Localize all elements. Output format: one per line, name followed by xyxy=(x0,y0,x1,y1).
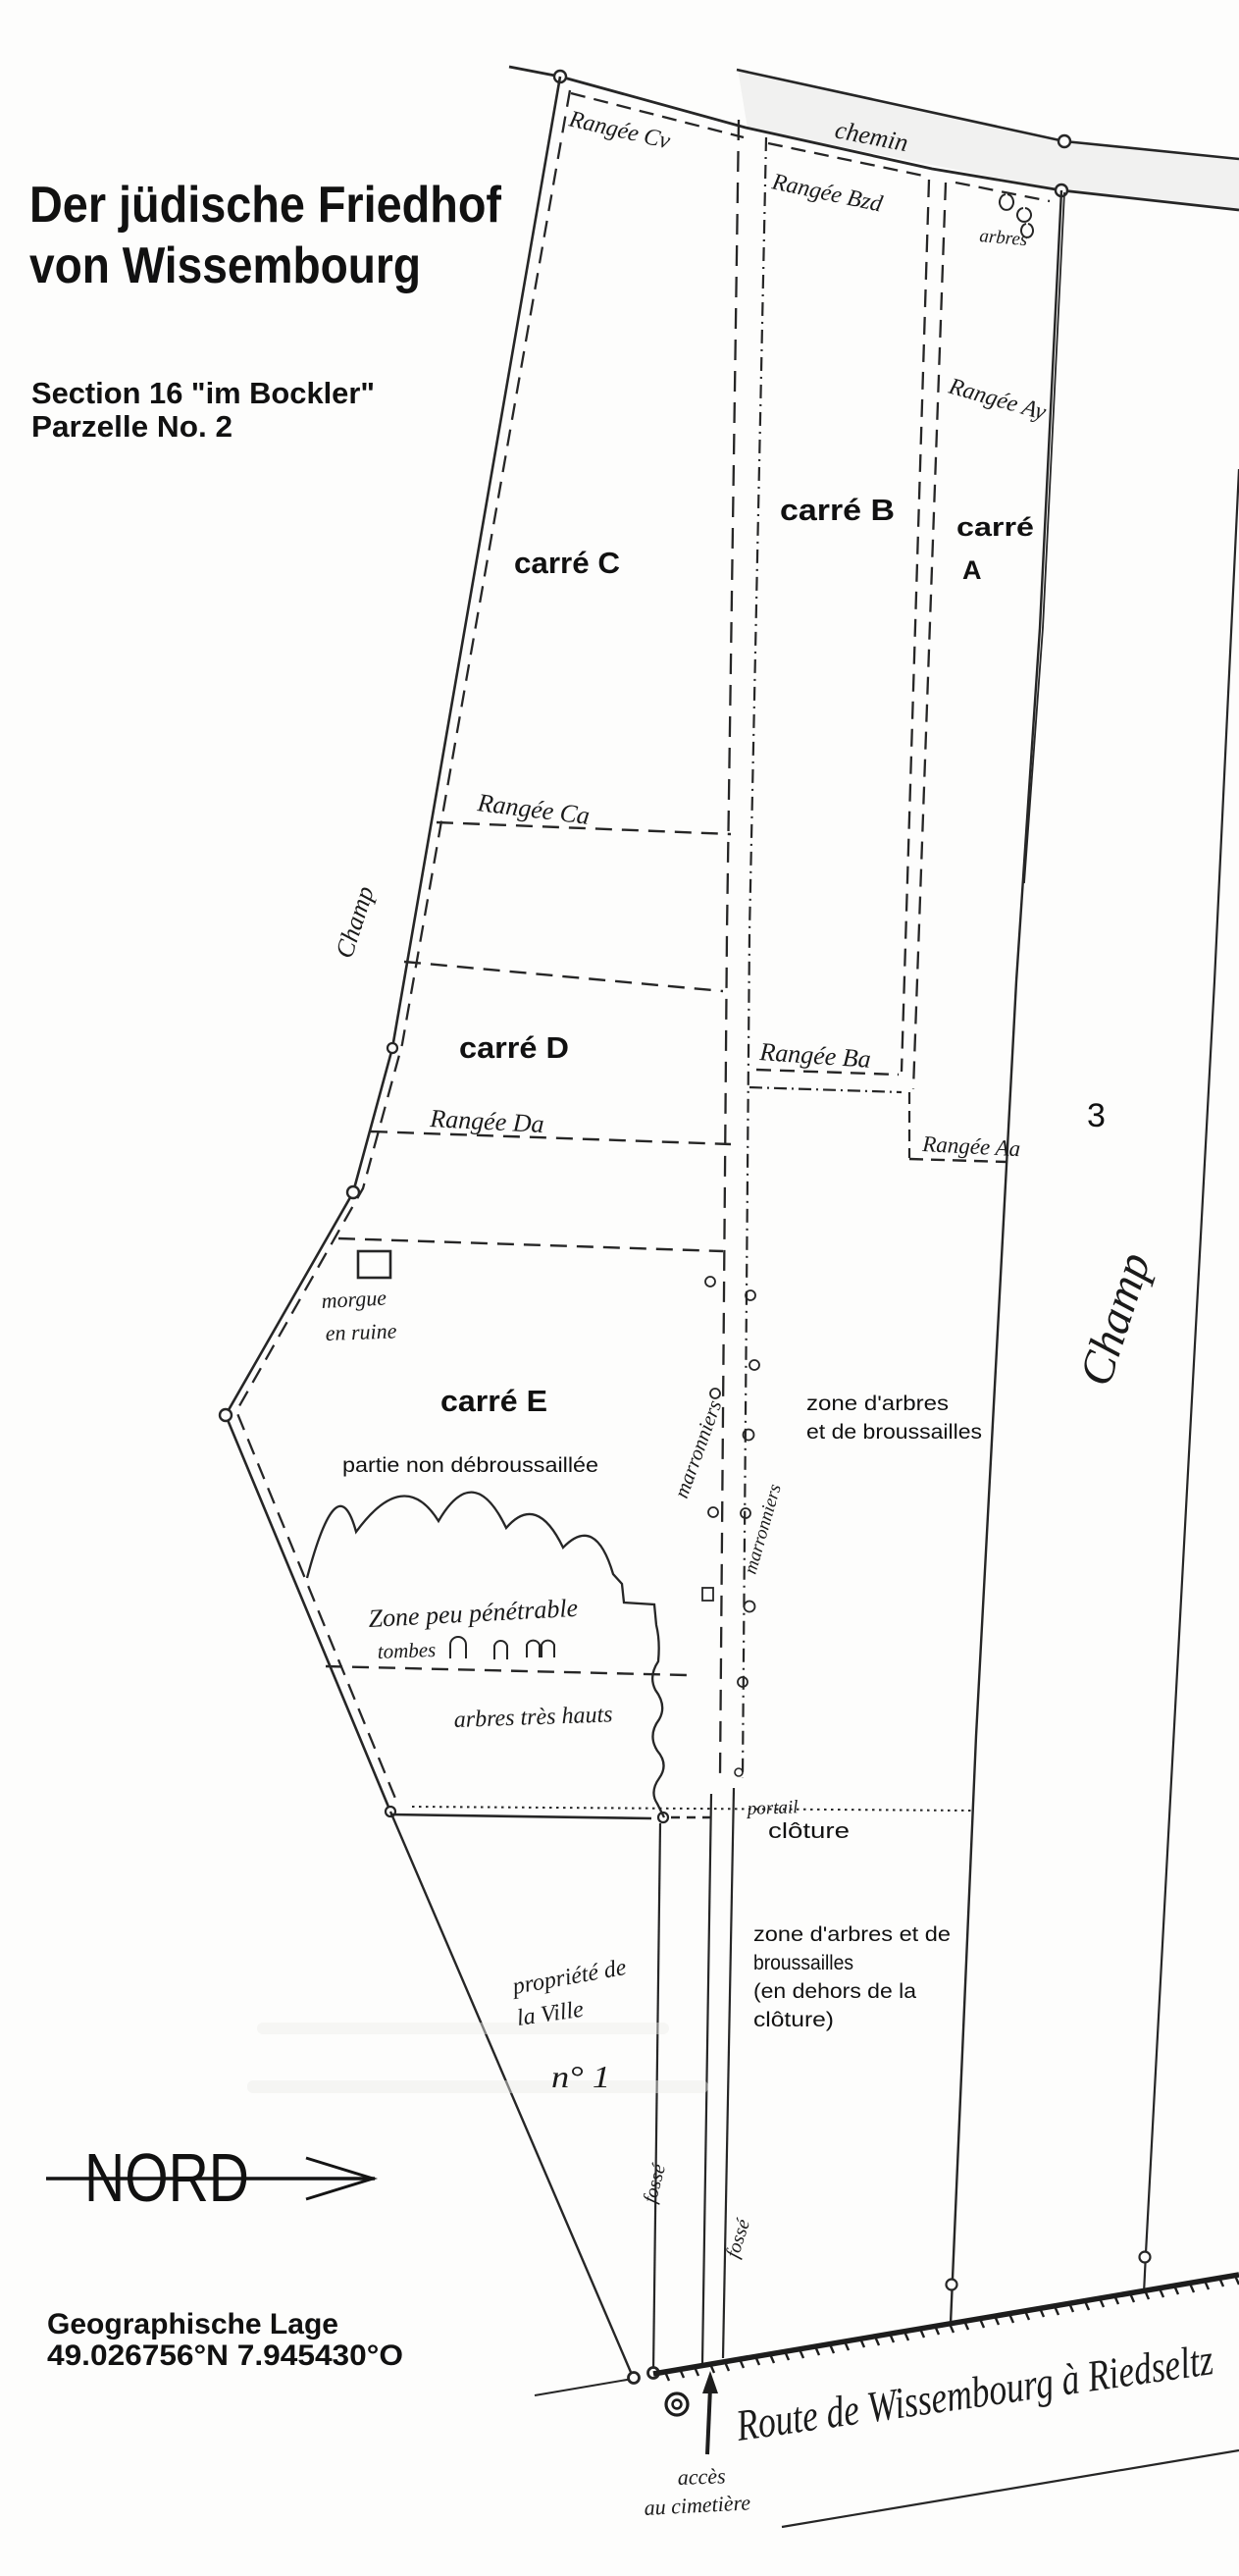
svg-text:Rangée Da: Rangée Da xyxy=(429,1104,545,1138)
svg-text:carré B: carré B xyxy=(780,493,895,527)
svg-text:(en dehors de la: (en dehors de la xyxy=(753,1980,916,2003)
svg-text:Geographische Lage: Geographische Lage xyxy=(47,2308,338,2340)
svg-text:accès: accès xyxy=(677,2463,726,2490)
svg-text:n° 1: n° 1 xyxy=(551,2059,610,2094)
svg-text:carré D: carré D xyxy=(459,1030,569,1065)
svg-text:partie non débroussaillée: partie non débroussaillée xyxy=(342,1454,598,1477)
svg-text:zone d'arbres: zone d'arbres xyxy=(806,1393,949,1415)
svg-text:Section 16 "im Bockler": Section 16 "im Bockler" xyxy=(31,376,375,410)
svg-text:zone d'arbres et de: zone d'arbres et de xyxy=(753,1923,951,1946)
svg-text:broussailles: broussailles xyxy=(753,1952,853,1974)
svg-text:Rangée Aa: Rangée Aa xyxy=(921,1131,1021,1161)
svg-text:tombes: tombes xyxy=(377,1638,436,1663)
svg-text:morgue: morgue xyxy=(321,1286,387,1313)
svg-text:clôture: clôture xyxy=(768,1818,850,1843)
svg-text:A: A xyxy=(962,555,982,585)
svg-text:portail: portail xyxy=(745,1797,798,1819)
svg-text:et de broussailles: et de broussailles xyxy=(806,1421,982,1444)
svg-text:3: 3 xyxy=(1087,1097,1106,1134)
svg-text:NORD: NORD xyxy=(84,2139,249,2216)
svg-text:en ruine: en ruine xyxy=(325,1318,397,1345)
svg-text:Der jüdische Friedhof: Der jüdische Friedhof xyxy=(29,177,502,234)
svg-text:von Wissembourg: von Wissembourg xyxy=(29,237,421,294)
svg-text:49.026756°N 7.945430°O: 49.026756°N 7.945430°O xyxy=(47,2339,403,2372)
svg-text:carré E: carré E xyxy=(440,1384,547,1418)
svg-text:clôture): clôture) xyxy=(753,2009,834,2031)
svg-text:carré C: carré C xyxy=(514,546,620,580)
svg-text:Parzelle No. 2: Parzelle No. 2 xyxy=(31,409,232,444)
svg-text:carré: carré xyxy=(956,512,1034,542)
